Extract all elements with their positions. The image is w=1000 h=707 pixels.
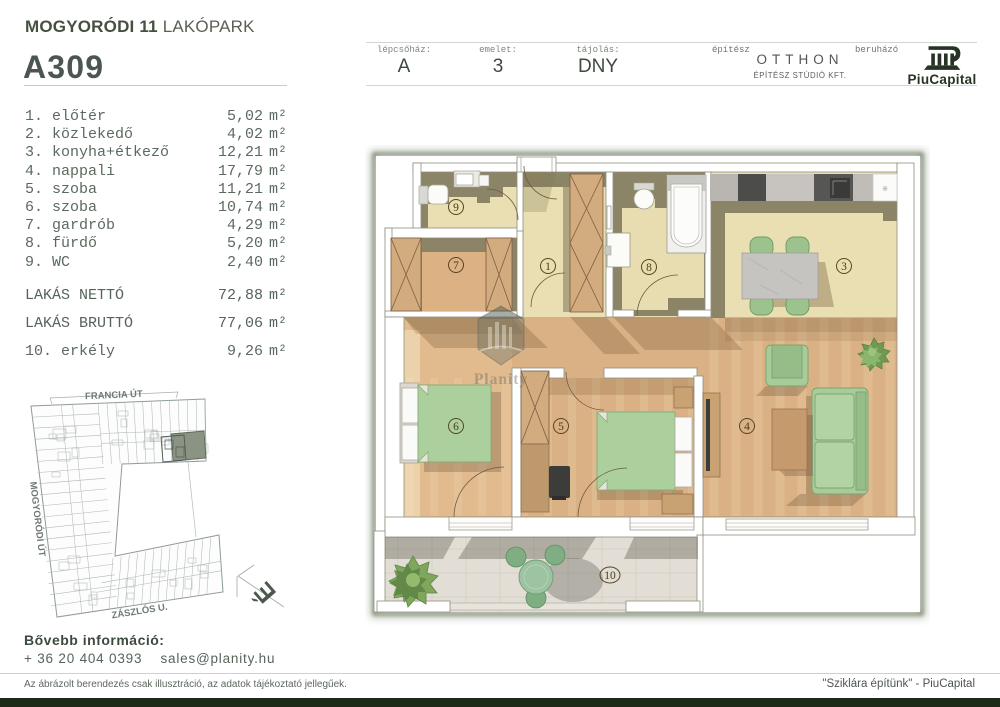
svg-text:4: 4 — [744, 421, 750, 433]
svg-text:É: É — [248, 576, 282, 609]
svg-text:FRANCIA ÚT: FRANCIA ÚT — [85, 388, 143, 403]
svg-text:※: ※ — [882, 186, 888, 193]
svg-text:9: 9 — [453, 202, 459, 214]
svg-text:PiuCapital: PiuCapital — [907, 72, 976, 87]
svg-text:3: 3 — [841, 261, 847, 273]
svg-text:6: 6 — [453, 421, 459, 433]
svg-text:8: 8 — [646, 262, 652, 274]
svg-text:7: 7 — [453, 260, 459, 272]
svg-text:5: 5 — [558, 421, 564, 433]
svg-text:Planity: Planity — [474, 371, 528, 388]
svg-text:10: 10 — [604, 570, 616, 582]
svg-text:1: 1 — [545, 261, 551, 273]
